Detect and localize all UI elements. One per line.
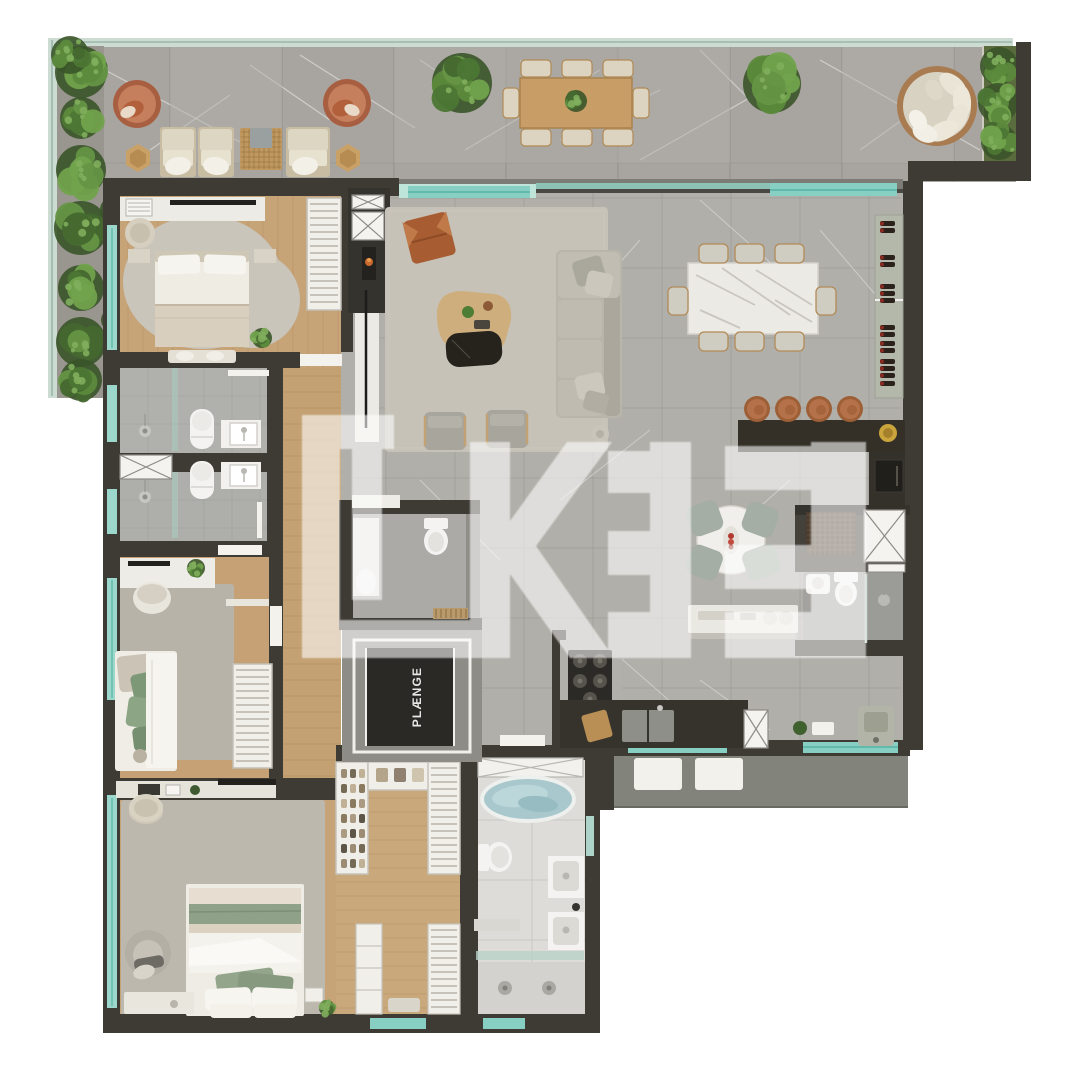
svg-text:PLÆNGE: PLÆNGE <box>410 667 424 728</box>
